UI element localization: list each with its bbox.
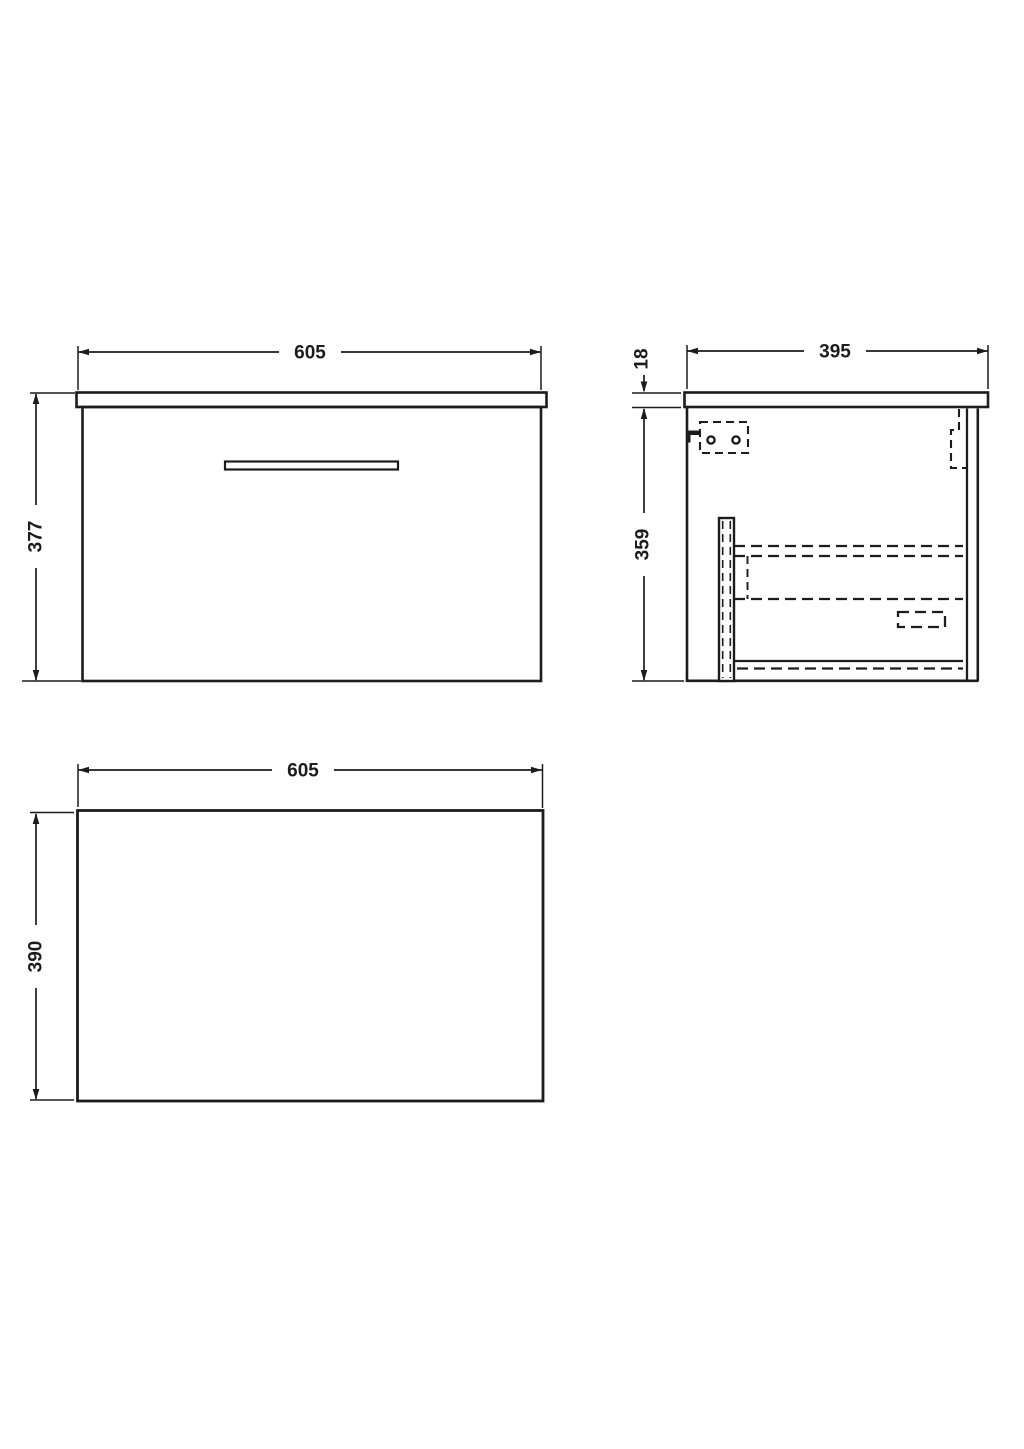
arrow-left-icon <box>687 348 698 355</box>
side-drawer-box <box>734 546 963 669</box>
plan-width-dimension: 605 <box>78 759 543 808</box>
drawer-runner-detail <box>898 612 945 627</box>
arrow-up-icon <box>33 813 40 824</box>
drawing-canvas: 605 377 <box>0 0 1024 1449</box>
side-worktop <box>685 393 989 408</box>
side-depth-label: 395 <box>819 342 851 363</box>
arrow-right-icon <box>531 767 542 774</box>
arrow-right-icon <box>530 349 541 356</box>
bracket-hook <box>686 431 701 443</box>
side-wall-bracket <box>686 422 748 453</box>
arrow-left-icon <box>78 349 89 356</box>
front-width-label: 605 <box>294 343 326 364</box>
front-view: 605 377 <box>22 341 547 681</box>
front-worktop <box>77 393 547 408</box>
front-cabinet-body <box>83 407 542 681</box>
plan-depth-label: 390 <box>26 941 47 973</box>
front-width-dimension: 605 <box>78 341 541 390</box>
arrow-down-icon <box>641 670 648 681</box>
bracket-screw-hole <box>732 436 739 443</box>
arrow-right-icon <box>977 348 988 355</box>
plan-worktop-outline <box>78 811 544 1102</box>
side-height-dimension: 359 <box>632 408 684 681</box>
front-height-label: 377 <box>26 521 47 553</box>
front-height-dimension: 377 <box>22 393 81 681</box>
side-view: 395 18 359 <box>632 340 989 681</box>
plan-view: 605 390 <box>25 759 543 1101</box>
plan-depth-dimension: 390 <box>25 813 74 1101</box>
drawer-front-panel <box>719 518 734 681</box>
arrow-down-icon <box>641 382 648 393</box>
plan-width-label: 605 <box>287 761 319 782</box>
arrow-down-icon <box>33 670 40 681</box>
side-worktop-thickness-label: 18 <box>632 348 653 369</box>
arrow-left-icon <box>78 767 89 774</box>
arrow-up-icon <box>33 393 40 404</box>
arrow-up-icon <box>641 408 648 419</box>
arrow-down-icon <box>33 1089 40 1100</box>
side-depth-dimension: 395 <box>687 340 988 389</box>
bracket-screw-hole <box>707 436 714 443</box>
side-height-label: 359 <box>633 529 654 561</box>
side-worktop-thickness-dimension: 18 <box>632 344 682 408</box>
side-hanging-bracket <box>951 409 966 468</box>
side-drawer-front <box>719 518 734 681</box>
front-drawer-handle <box>225 462 398 470</box>
technical-drawing: 605 377 <box>0 0 1024 1449</box>
